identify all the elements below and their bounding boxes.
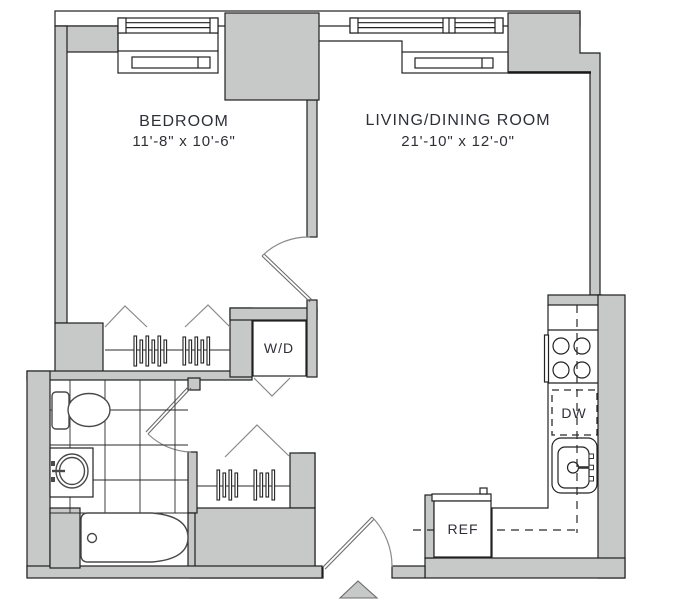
bedroom-door	[262, 237, 312, 302]
hanger-bar	[260, 473, 263, 497]
hanger-bar	[217, 470, 220, 500]
center-column	[225, 13, 319, 100]
burner	[553, 338, 569, 354]
bedroom-corner-wall-block	[55, 323, 103, 373]
refrigerator-label: REF	[448, 521, 479, 537]
hanger-bar	[183, 337, 186, 365]
closet-door-chevron	[225, 425, 289, 457]
refrigerator-side-wall	[425, 495, 434, 558]
walls	[27, 11, 625, 578]
bedroom-door-leaf	[264, 254, 312, 300]
dishwasher: DW	[552, 390, 597, 435]
top-right-column-and-right-wall	[508, 13, 600, 295]
bathtub-drain	[88, 534, 97, 543]
faucet-handle	[51, 461, 55, 466]
kitchen-sink	[552, 438, 597, 493]
bottom-wall-entry-right	[392, 566, 425, 578]
faucet-handle	[589, 454, 594, 459]
hall-closet	[197, 425, 290, 500]
refrigerator-handle	[480, 488, 487, 494]
hanger-bar	[195, 337, 198, 365]
entry-door-swing	[372, 517, 392, 567]
room-labels: BEDROOM 11'-8" x 10'-6" LIVING/DINING RO…	[132, 112, 550, 150]
hanger-bar	[254, 470, 257, 500]
hanger-bar	[201, 340, 204, 363]
stove	[545, 335, 591, 382]
kitchen-top-wall	[548, 295, 602, 305]
bathroom-door-top-jamb	[188, 378, 200, 390]
entry-door-leaf	[325, 519, 374, 569]
bathroom-door-swing	[148, 434, 191, 452]
bathroom-door-leaf	[148, 388, 191, 434]
hanger-bar	[140, 340, 143, 363]
entry-door-leaf	[323, 517, 372, 567]
bathroom-door-leaf	[146, 386, 189, 432]
wd-bifold-door	[254, 378, 290, 396]
living-window-frame	[350, 18, 503, 33]
bedroom-door-leaf	[262, 256, 310, 302]
faucet-handle	[589, 477, 594, 482]
bathtub	[81, 513, 188, 562]
kitchen: DW REF	[413, 305, 598, 558]
living-dining-label: LIVING/DINING ROOM	[365, 112, 550, 129]
left-exterior-wall	[55, 26, 67, 323]
window-post	[350, 18, 358, 33]
hall-closet-right-wall	[290, 453, 315, 508]
tub-right-wall	[188, 513, 195, 568]
window-post	[495, 18, 503, 33]
dishwasher-label: DW	[561, 405, 586, 421]
floor-plan: W/D	[0, 0, 685, 606]
living-dining-dimensions: 21'-10" x 12'-0"	[401, 133, 514, 150]
bedroom-dimensions: 11'-8" x 10'-6"	[132, 133, 235, 150]
hanger-bar	[152, 340, 155, 363]
bedroom-window	[118, 18, 218, 73]
burner	[553, 362, 569, 378]
bedroom-window-frame	[118, 18, 218, 33]
hanger-bar	[266, 473, 269, 497]
hanger-bar	[164, 340, 167, 363]
hanger-bars	[134, 336, 210, 366]
window-post	[118, 18, 126, 33]
bedroom-bathroom-dividing-wall	[27, 371, 252, 380]
living-convector-unit	[415, 58, 493, 68]
living-window-sill-line	[319, 41, 402, 52]
window-post	[210, 18, 218, 33]
hanger-bar	[158, 336, 161, 366]
hanger-bar	[229, 470, 232, 500]
bedroom-door-swing	[262, 237, 310, 256]
toilet-bowl	[68, 394, 110, 427]
hanger-bar	[235, 473, 238, 497]
wd-top-wall	[230, 308, 317, 320]
tub-left-wall	[50, 508, 80, 568]
washer-dryer-label: W/D	[264, 340, 294, 356]
wd-right-wall	[307, 300, 317, 377]
toilet	[52, 392, 110, 429]
hanger-bars	[217, 470, 275, 500]
bedroom-label: BEDROOM	[139, 113, 229, 130]
hanger-bar	[207, 337, 210, 365]
bedroom-right-wall	[307, 100, 317, 237]
entry-door	[323, 517, 392, 598]
right-exterior-wall-lower	[598, 295, 625, 578]
entry-marker-triangle	[340, 581, 377, 598]
faucet-handle	[589, 465, 594, 470]
refrigerator-door	[432, 494, 491, 501]
hanger-bar	[134, 336, 137, 366]
closet-door-chevron	[105, 306, 147, 327]
bathroom-right-wall	[188, 452, 197, 513]
left-exterior-wall-lower	[27, 371, 50, 576]
kitchen-counter-edge	[492, 305, 548, 558]
sink-vanity	[50, 448, 93, 497]
bottom-wall-right	[425, 558, 625, 578]
faucet-handle	[51, 477, 55, 482]
refrigerator: REF	[432, 488, 491, 557]
bedroom-closet	[105, 305, 230, 366]
hanger-bar	[223, 473, 226, 497]
washer-dryer-closet: W/D	[253, 321, 306, 376]
stove-handle	[545, 335, 549, 382]
hanger-bar	[189, 340, 192, 363]
toilet-tank	[52, 392, 69, 429]
hanger-bar	[272, 470, 275, 500]
bathroom-door	[146, 386, 191, 452]
hanger-bar	[146, 336, 149, 366]
closet-door-chevron	[185, 305, 230, 327]
floor-plan-drawing: W/D	[0, 0, 685, 606]
